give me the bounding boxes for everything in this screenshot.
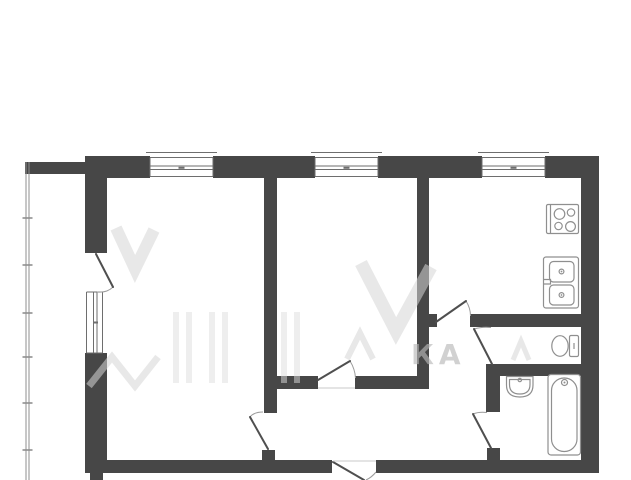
watermark-letters: КА xyxy=(411,338,466,371)
window-room1-side xyxy=(87,292,103,353)
watermark: КА xyxy=(89,228,529,386)
floor-plan-svg: КА xyxy=(0,0,631,480)
room1-door-stub xyxy=(262,450,275,460)
floor-plan-image: КА xyxy=(0,0,631,480)
left-wall-upper xyxy=(85,156,107,253)
balcony-railing xyxy=(23,162,33,480)
door-balcony xyxy=(96,254,113,292)
door-wc xyxy=(474,327,492,364)
top-wall-segment-c xyxy=(378,156,482,178)
room-divider-wall xyxy=(264,178,277,413)
kitchen-south-wall xyxy=(470,314,581,327)
door-room1 xyxy=(250,412,268,449)
bottom-left-stub xyxy=(90,473,103,480)
door-bathroom xyxy=(473,412,491,448)
top-wall-segment-b xyxy=(213,156,315,178)
watermark-chevron-icon xyxy=(347,333,373,359)
window-room1-top xyxy=(146,153,217,177)
watermark-letter-bars xyxy=(173,312,300,383)
door-room2 xyxy=(318,361,356,380)
bathtub-icon xyxy=(548,375,581,456)
watermark-chevron-icon xyxy=(513,341,529,360)
bathroom-door-stub xyxy=(487,448,500,460)
bottom-wall-west xyxy=(85,460,332,473)
bottom-wall-east xyxy=(376,460,599,473)
window-room2-top xyxy=(311,153,382,177)
window-kitchen-top xyxy=(478,153,549,177)
walls xyxy=(25,156,599,480)
fixtures xyxy=(507,205,581,456)
washbasin-icon xyxy=(507,377,534,398)
watermark-chevron-icon xyxy=(116,228,154,269)
right-wall xyxy=(581,156,599,473)
kitchen-sink-icon xyxy=(544,257,579,308)
kitchen-south-stub xyxy=(429,314,437,327)
stove-icon xyxy=(547,205,579,234)
toilet-icon xyxy=(552,336,579,357)
door-entrance xyxy=(333,462,376,480)
top-wall-balcony-segment xyxy=(25,162,92,174)
door-kitchen xyxy=(436,301,471,322)
bathroom-west-wall xyxy=(486,364,500,412)
